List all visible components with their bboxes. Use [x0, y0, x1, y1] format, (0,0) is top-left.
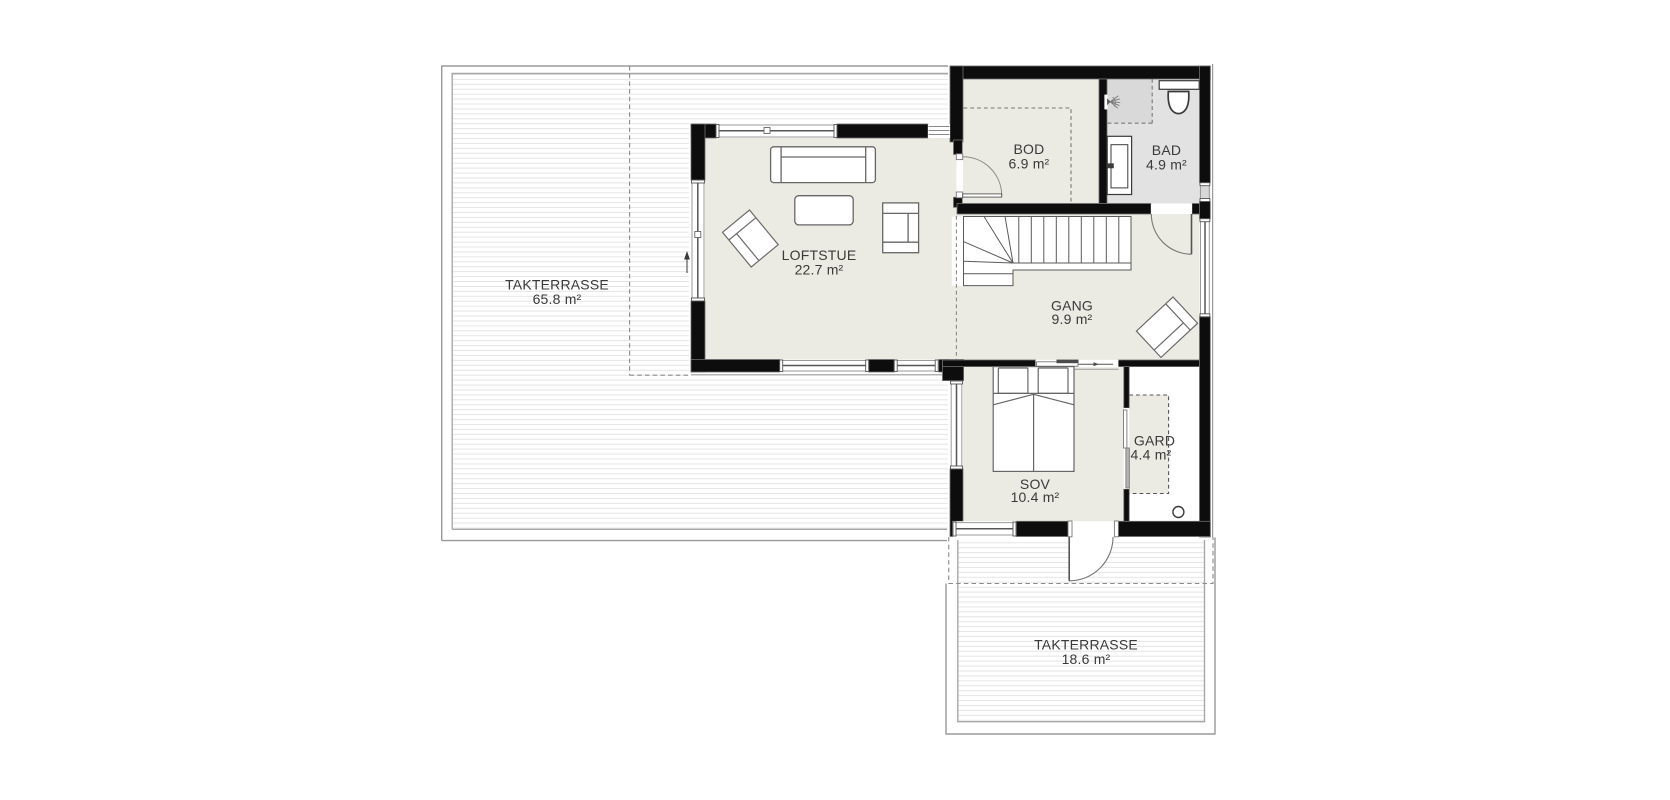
svg-text:65.8 m²: 65.8 m²: [533, 291, 582, 307]
svg-text:6.9 m²: 6.9 m²: [1009, 156, 1050, 172]
svg-text:9.9 m²: 9.9 m²: [1052, 311, 1093, 327]
svg-text:18.6 m²: 18.6 m²: [1062, 651, 1111, 667]
svg-text:4.9 m²: 4.9 m²: [1146, 157, 1187, 173]
svg-text:10.4 m²: 10.4 m²: [1011, 489, 1060, 505]
svg-text:22.7 m²: 22.7 m²: [795, 262, 844, 278]
svg-text:4.4 m²: 4.4 m²: [1131, 447, 1172, 463]
